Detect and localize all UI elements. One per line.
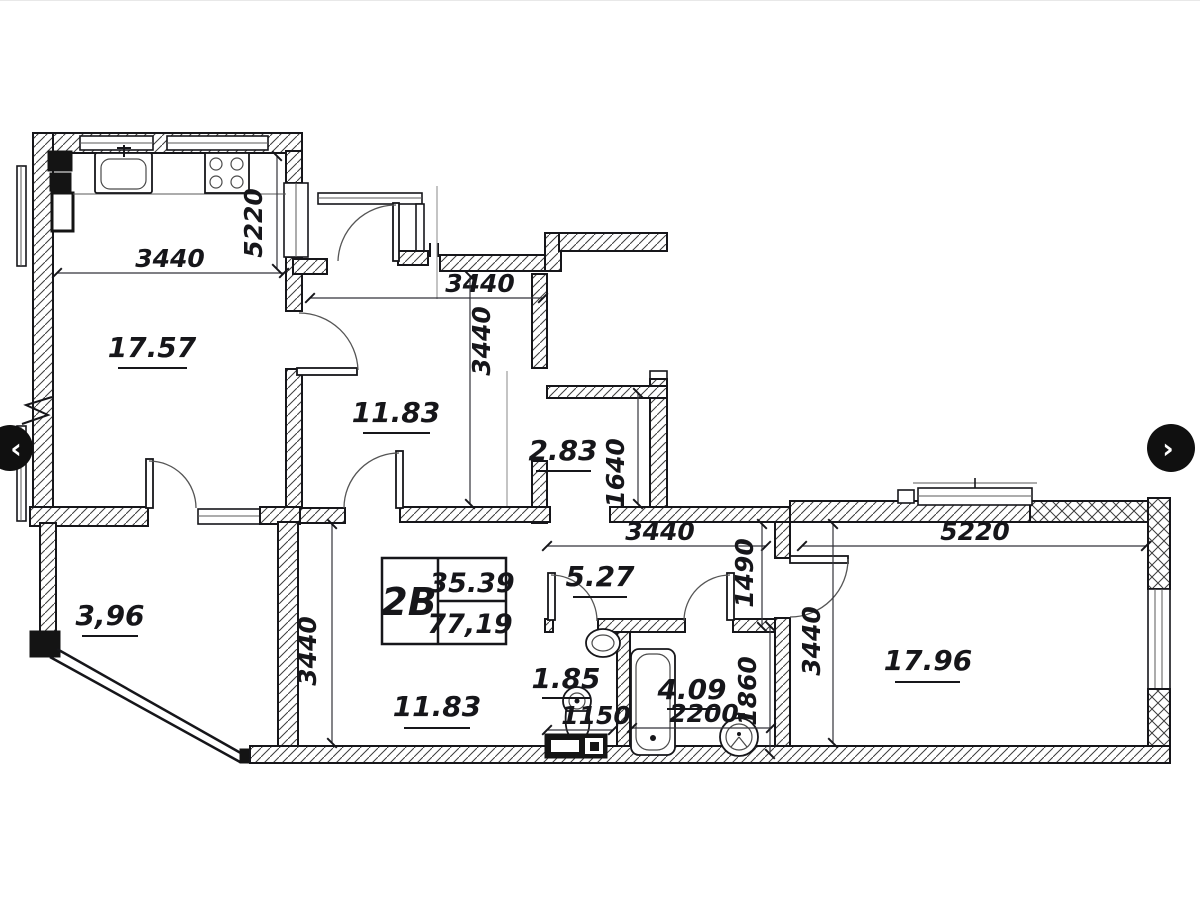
room-lower-area: 11.83: [393, 690, 482, 723]
room-living-kitchen-area: 17.57: [108, 331, 197, 364]
dim-corridor-length: 1640: [601, 438, 630, 508]
unit-info-box: 2B 35.39 77,19: [381, 558, 514, 644]
room-hall-upper-area: 11.83: [352, 396, 441, 429]
room-bathroom-area: 4.09: [656, 673, 726, 706]
dim-wc-width: 1150: [561, 701, 631, 730]
room-labels-group: 17.57 11.83 2.83 3,96 11.83 5.27 1.85 4.…: [75, 331, 972, 728]
kitchen-sink-icon: [95, 145, 152, 193]
wc-basin-icon: [586, 629, 620, 657]
vent-shaft: [48, 151, 72, 171]
dim-kitchen-height: 5220: [239, 188, 268, 258]
wc-door-leaf: [548, 573, 555, 620]
loggia-door-leaf: [393, 203, 399, 261]
unit-total-area: 77,19: [427, 609, 512, 640]
room-hallway-area: 5.27: [565, 560, 635, 593]
room-balcony-area: 3,96: [75, 599, 144, 632]
room-lower-door-leaf: [396, 451, 403, 508]
chevron-left-icon: ‹: [10, 432, 22, 465]
right-wall-window: [1148, 589, 1170, 689]
dim-bathroom-height: 1860: [733, 656, 762, 726]
dim-room-right-height: 3440: [797, 606, 826, 676]
listing-photo-viewer: 3440 5220 3440 3440 1640 3440 1490 5220 …: [0, 0, 1200, 898]
dim-hallway-width: 3440: [625, 517, 695, 546]
dim-hall-width: 3440: [445, 269, 515, 298]
dim-room-right-width: 5220: [940, 517, 1010, 546]
wc-cabinet-icon: [545, 734, 607, 758]
room-wc-area: 1.85: [531, 662, 600, 695]
carousel-prev-button[interactable]: ‹: [0, 425, 33, 471]
dim-hallway-height: 1490: [730, 538, 759, 608]
living-room-door-leaf: [297, 368, 357, 375]
balcony-diagonal-wall: [57, 649, 246, 756]
stove-icon: [205, 153, 249, 193]
balcony-door-leaf: [146, 459, 153, 508]
dim-hall-height: 3440: [467, 306, 496, 376]
room-corridor-area: 2.83: [528, 434, 597, 467]
unit-living-area: 35.39: [429, 568, 514, 599]
floor-plan-svg: 3440 5220 3440 3440 1640 3440 1490 5220 …: [0, 1, 1200, 898]
chevron-right-icon: ›: [1162, 432, 1174, 465]
carousel-next-button[interactable]: ›: [1147, 424, 1195, 472]
dim-room-lower-height: 3440: [293, 616, 322, 686]
room-right-door-leaf: [790, 556, 848, 563]
room-right-area: 17.96: [884, 644, 973, 677]
dim-kitchen-width: 3440: [135, 244, 205, 273]
